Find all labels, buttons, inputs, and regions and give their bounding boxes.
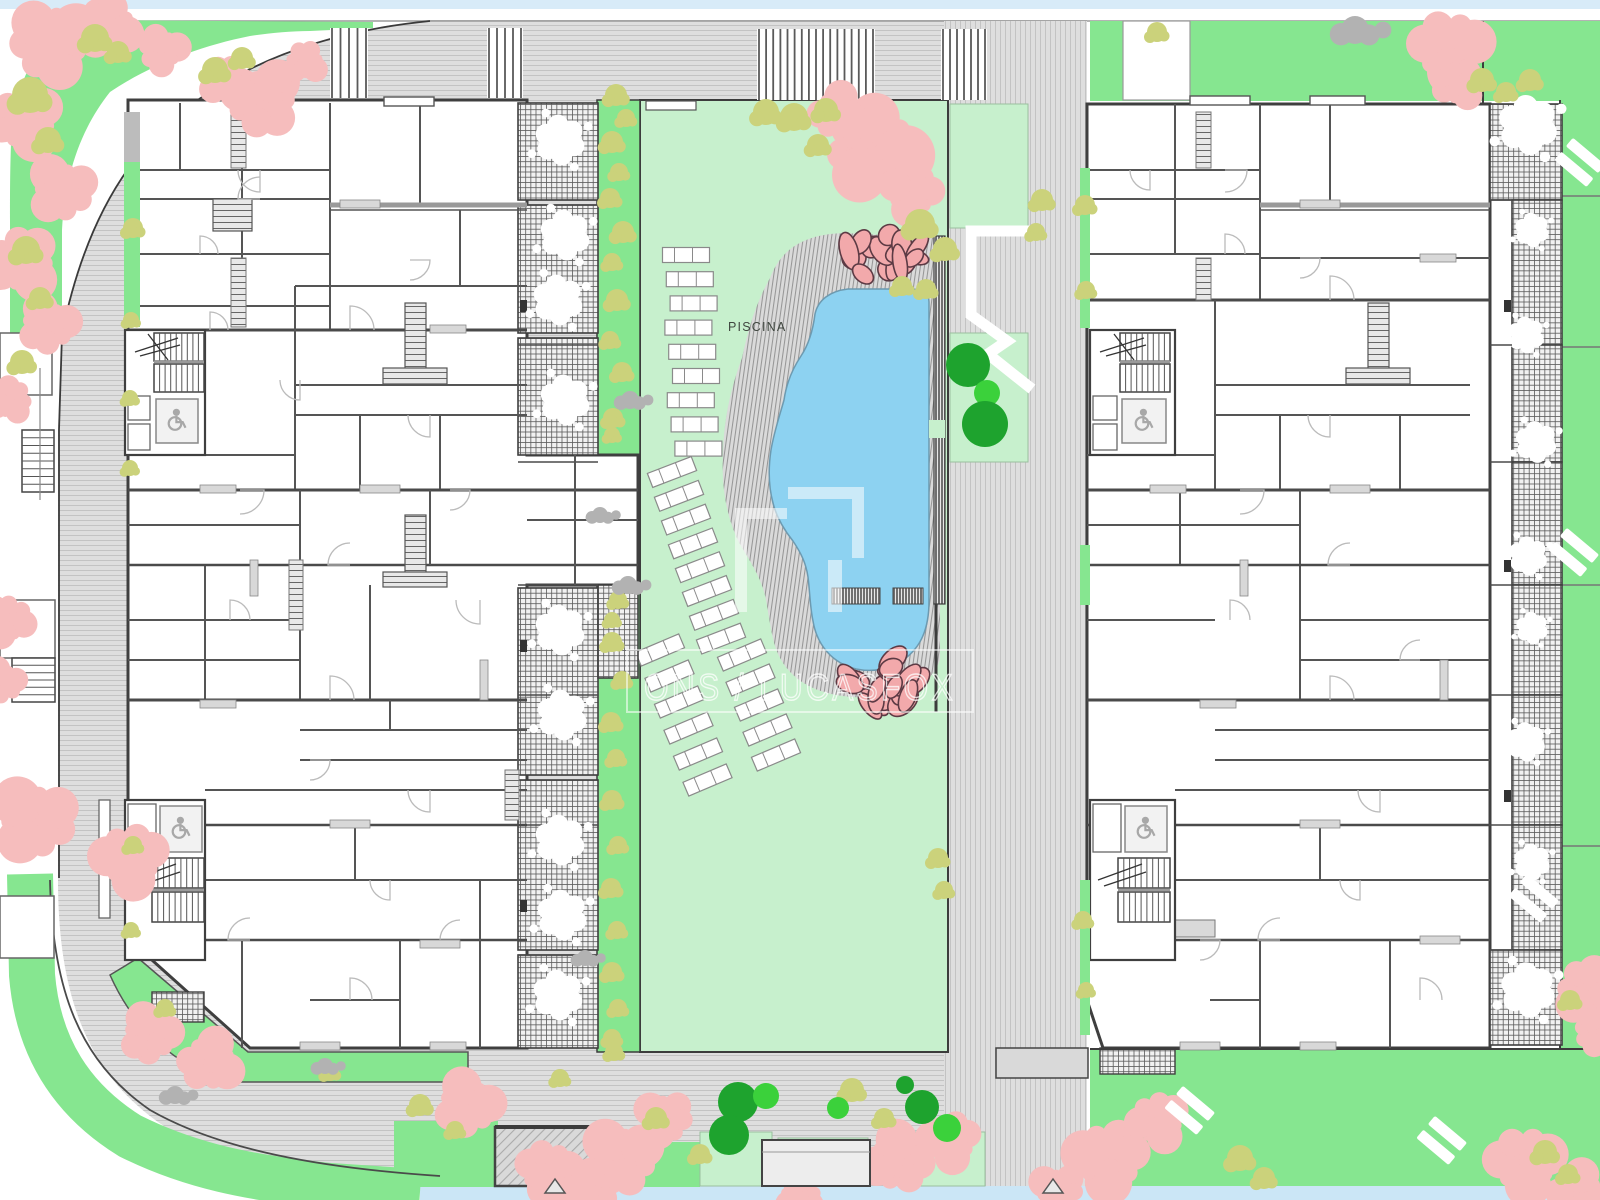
svg-text:ONS / LUCASFOX: ONS / LUCASFOX: [644, 667, 956, 708]
svg-text:PISCINA: PISCINA: [728, 320, 786, 334]
